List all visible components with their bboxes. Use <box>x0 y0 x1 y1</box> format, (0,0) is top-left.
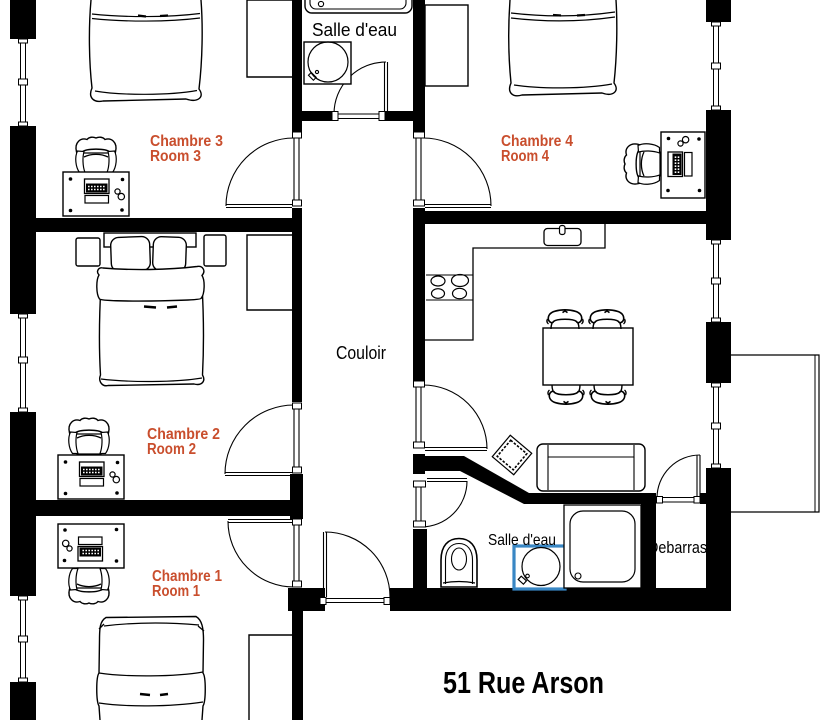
svg-text:Couloir: Couloir <box>336 343 386 363</box>
svg-text:Room 1: Room 1 <box>152 583 200 600</box>
svg-text:Room 2: Room 2 <box>147 441 196 458</box>
svg-text:Room 3: Room 3 <box>150 148 201 165</box>
svg-text:Salle d'eau: Salle d'eau <box>488 532 556 549</box>
svg-text:Salle d'eau: Salle d'eau <box>312 20 397 40</box>
svg-text:51 Rue Arson: 51 Rue Arson <box>443 665 604 700</box>
svg-text:Room 4: Room 4 <box>501 148 549 165</box>
svg-text:Debarras: Debarras <box>648 538 707 557</box>
